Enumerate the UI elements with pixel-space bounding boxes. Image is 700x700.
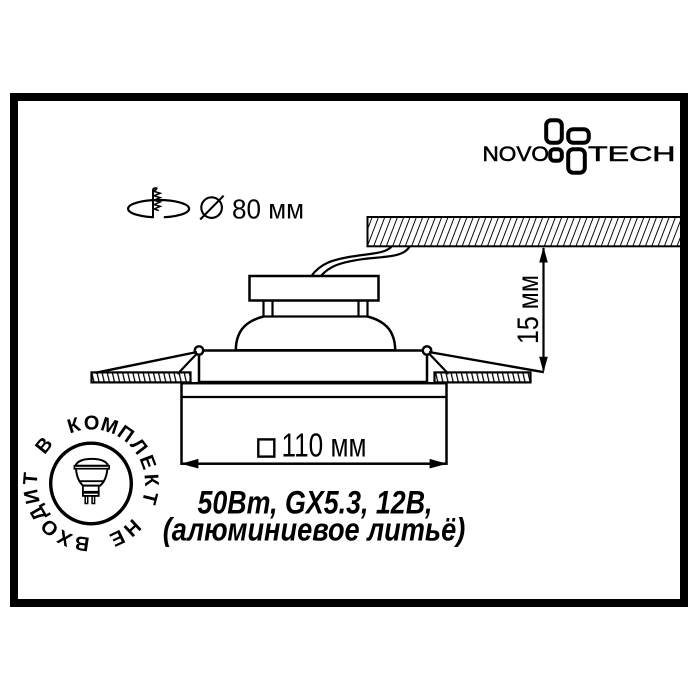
svg-text:80 мм: 80 мм xyxy=(232,193,304,224)
svg-text:К: К xyxy=(140,473,163,487)
svg-text:Т: Т xyxy=(20,472,43,486)
svg-text:NOVO: NOVO xyxy=(483,143,550,166)
svg-text:TECH: TECH xyxy=(588,143,676,166)
svg-text:110 мм: 110 мм xyxy=(282,428,367,465)
svg-text:15 мм: 15 мм xyxy=(512,275,545,344)
svg-text:О: О xyxy=(84,412,100,434)
svg-text:(алюминиевое литьё): (алюминиевое литьё) xyxy=(163,512,466,548)
